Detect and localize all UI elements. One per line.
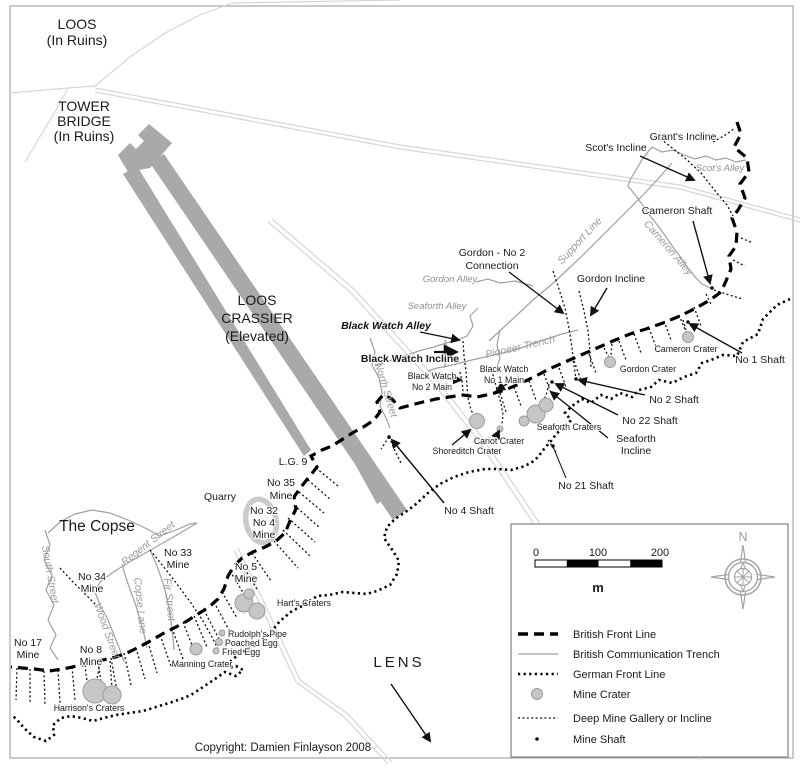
map-label-cameron-shaft: Cameron Shaft: [642, 205, 713, 217]
map-label-no21-shaft: No 21 Shaft: [558, 480, 614, 492]
map-label-fried-egg: Fried Egg: [222, 647, 260, 657]
legend-swatch-mine-crater: [532, 689, 543, 700]
poached-egg-shape: [216, 639, 223, 646]
no21-shaft-dot: [551, 444, 555, 448]
map-label-lg9: L.G. 9: [279, 456, 308, 468]
scale-100: 100: [589, 547, 607, 559]
map-label-manning-crater: Manning Crater: [172, 659, 233, 669]
map-label-no8-mine: No 8Mine: [80, 644, 103, 668]
legend-item-mine-shaft: Mine Shaft: [573, 734, 626, 746]
compass-north-label: N: [738, 530, 747, 544]
no22-shaft-dot: [550, 380, 554, 384]
scale-200: 200: [651, 547, 669, 559]
map-label-grants-incline: Grant's Incline: [650, 131, 717, 143]
map-label-shoreditch-crater: Shoreditch Crater: [433, 446, 502, 456]
legend-swatch-mine-shaft: [535, 737, 539, 741]
shoreditch-crater-shape: [470, 414, 485, 429]
map-label-black-watch-no2-main: Black WatchNo 2 Main: [408, 371, 457, 392]
loos-mine-map: 0 100 200 m N British Front Line British…: [0, 0, 800, 771]
copyright-text: Copyright: Damien Finlayson 2008: [195, 742, 371, 754]
harts-crater-2: [249, 603, 265, 619]
map-label-no34-mine: No 34Mine: [78, 571, 106, 595]
cariot-crater-shape: [497, 426, 503, 432]
cameron-crater-shape: [683, 332, 694, 343]
map-label-seaforth-incline: SeaforthIncline: [616, 433, 656, 457]
legend: 0 100 200 m N British Front Line British…: [511, 524, 788, 757]
map-label-no2-shaft: No 2 Shaft: [649, 394, 699, 406]
map-label-gordon-alley: Gordon Alley: [423, 274, 479, 285]
map-label-cameron-crater: Cameron Crater: [654, 344, 717, 354]
scale-unit: m: [592, 580, 604, 595]
gordon-crater-shape: [605, 357, 616, 368]
map-label-no1-shaft: No 1 Shaft: [735, 354, 785, 366]
legend-item-mine-crater: Mine Crater: [573, 689, 631, 701]
map-label-no5-mine: No 5Mine: [235, 561, 258, 585]
map-label-harrisons-craters: Harrison's Craters: [54, 703, 125, 713]
legend-item-communication-trench: British Communication Trench: [573, 649, 720, 661]
map-label-tower-bridge: TOWERBRIDGE(In Ruins): [54, 98, 115, 144]
map-label-scots-alley: Scot's Alley: [696, 163, 746, 174]
harts-crater-3: [244, 589, 254, 599]
map-label-gordon-incline: Gordon Incline: [577, 273, 645, 285]
map-label-gordon-crater: Gordon Crater: [620, 364, 676, 374]
cameron-shaft-dot: [710, 286, 714, 290]
manning-crater-shape: [190, 643, 202, 655]
legend-item-mine-gallery: Deep Mine Gallery or Incline: [573, 713, 712, 725]
map-label-gordon-no2-connection: Gordon - No 2Connection: [459, 247, 526, 272]
map-label-the-copse: The Copse: [59, 518, 135, 535]
seaforth-crater-2: [539, 398, 553, 412]
legend-item-german-front-line: German Front Line: [573, 669, 665, 681]
harrisons-crater-2: [103, 686, 121, 704]
rudolphs-pipe-shape: [219, 630, 225, 636]
legend-item-british-front-line: British Front Line: [573, 629, 656, 641]
fried-egg-shape: [213, 648, 219, 654]
seaforth-crater-3: [519, 416, 529, 426]
map-label-lens: LENS: [373, 654, 424, 671]
map-label-no33-mine: No 33Mine: [164, 547, 192, 571]
map-label-cariot-crater: Cariot Crater: [474, 436, 524, 446]
map-label-scots-incline: Scot's Incline: [585, 142, 647, 154]
no2-shaft-dot: [574, 377, 578, 381]
map-label-quarry: Quarry: [204, 491, 237, 503]
map-label-harts-craters: Hart's Craters: [277, 598, 332, 608]
no1-shaft-dot: [686, 320, 690, 324]
no4-shaft-dot: [387, 435, 391, 439]
map-label-seaforth-alley: Seaforth Alley: [408, 301, 468, 312]
map-label-black-watch-no1-main: Black WatchNo 1 Main: [480, 364, 529, 385]
map-label-no17-mine: No 17Mine: [14, 637, 42, 661]
scale-0: 0: [533, 547, 539, 559]
map-label-no4-shaft: No 4 Shaft: [444, 505, 494, 517]
map-canvas: 0 100 200 m N British Front Line British…: [0, 0, 800, 771]
map-label-no22-shaft: No 22 Shaft: [622, 415, 678, 427]
map-label-black-watch-alley: Black Watch Alley: [341, 320, 432, 332]
map-label-no35-mine: No 35Mine: [267, 477, 295, 502]
map-label-no32-no4-mine: No 32No 4Mine: [250, 505, 278, 541]
map-label-seaforth-craters: Seaforth Craters: [537, 422, 602, 432]
